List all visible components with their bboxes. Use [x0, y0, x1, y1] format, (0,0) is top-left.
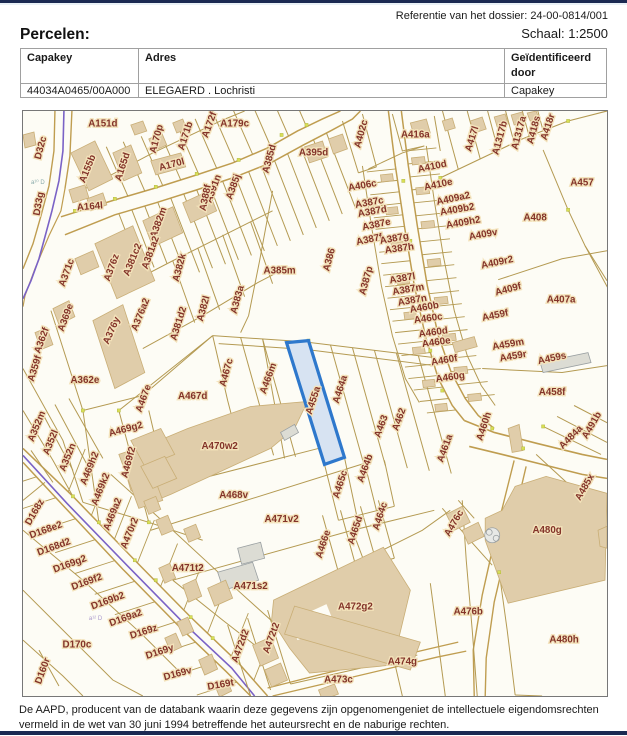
svg-text:A473c: A473c [324, 675, 353, 686]
svg-text:A416a: A416a [401, 130, 430, 141]
svg-text:A164l: A164l [76, 200, 103, 213]
svg-text:A474g: A474g [388, 657, 417, 668]
svg-text:A471t2: A471t2 [172, 563, 205, 574]
svg-text:A362e: A362e [71, 375, 100, 386]
svg-text:A408: A408 [523, 212, 547, 223]
svg-text:A472g2: A472g2 [338, 602, 373, 613]
svg-text:A179c: A179c [220, 119, 249, 130]
svg-text:A457: A457 [570, 177, 593, 188]
svg-text:A471v2: A471v2 [264, 514, 299, 525]
svg-text:A468v: A468v [219, 490, 248, 501]
svg-text:A407a: A407a [547, 294, 576, 305]
svg-text:A470w2: A470w2 [201, 441, 238, 452]
svg-text:a¹² D: a¹² D [89, 616, 103, 622]
svg-text:A458f: A458f [539, 387, 566, 398]
svg-text:A395d: A395d [299, 148, 328, 159]
svg-text:A467d: A467d [178, 391, 207, 402]
svg-text:D170c: D170c [63, 640, 92, 651]
svg-text:A151d: A151d [88, 119, 117, 130]
svg-text:A385m: A385m [264, 265, 296, 276]
svg-text:a¹⁰ D: a¹⁰ D [31, 179, 45, 186]
svg-text:A480h: A480h [549, 635, 578, 646]
svg-text:A480g: A480g [532, 525, 561, 536]
svg-text:A471s2: A471s2 [234, 581, 269, 592]
svg-text:A476b: A476b [454, 607, 483, 618]
